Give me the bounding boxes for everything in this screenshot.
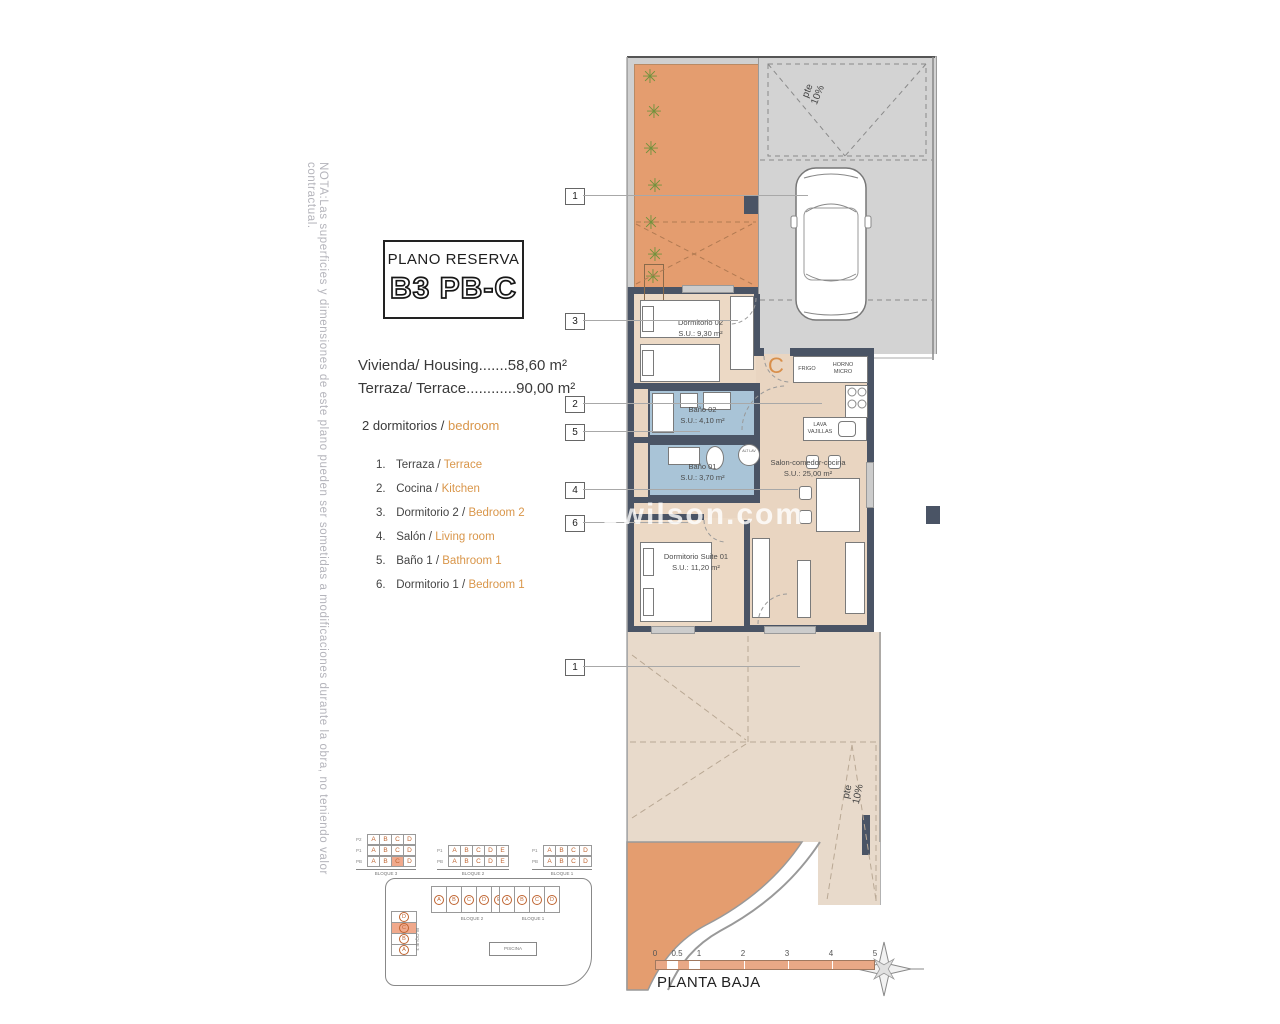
scale-tick: 0: [653, 949, 657, 958]
legend-en: Living room: [435, 531, 494, 543]
leader-line: [583, 431, 700, 432]
callout-terrace-top: 1: [565, 188, 585, 205]
site-bloque1: ABCD: [500, 886, 560, 913]
plan-title: PLANO RESERVA: [385, 251, 522, 268]
scale-bar-strip: [655, 960, 875, 970]
site-bloque1-label: BLOQUE 1: [506, 916, 560, 921]
room-name: Dormitorio Suite 01: [642, 552, 750, 563]
unit-cell: D: [403, 834, 416, 845]
entrance-letter: C: [768, 353, 784, 379]
legend-en: Bedroom 1: [468, 579, 524, 591]
legend-en: Bathroom 1: [442, 555, 501, 567]
label-oven: HORNO MICRO: [829, 362, 857, 375]
legend-num: 6.: [376, 579, 393, 591]
leader-line: [583, 489, 798, 490]
room-area: S.U.: 9,30 m²: [648, 329, 753, 340]
callout-bedroom2: 3: [565, 313, 585, 330]
burners: [848, 388, 866, 408]
label-dishwasher: LAVA VAJILLAS: [806, 422, 834, 435]
table-label: BLOQUE 2: [437, 869, 509, 876]
scale-tick: 3: [785, 949, 789, 958]
room-area: S.U.: 3,70 m²: [655, 473, 750, 484]
legend-en: Terrace: [444, 459, 482, 471]
room-area: S.U.: 4,10 m²: [655, 416, 750, 427]
legend-num: 2.: [376, 483, 393, 495]
site-unit-cell: D: [476, 886, 492, 913]
unit-cell: D: [579, 845, 592, 856]
site-unit-letter: C: [399, 923, 409, 933]
label-bathroom2: Baño 02 S.U.: 4,10 m²: [655, 405, 750, 426]
site-pool: PISCINA: [489, 942, 537, 956]
scale-tick: 1: [697, 949, 701, 958]
label-washer: ALT LAV: [740, 449, 758, 453]
site-bloque3-label: BLOQUE 3: [415, 928, 420, 951]
unit-cell: D: [403, 856, 416, 867]
callout-bedroom1: 6: [565, 515, 585, 532]
room-name: Baño 02: [655, 405, 750, 416]
plan-caption: PLANTA BAJA: [657, 974, 761, 991]
site-unit-letter: B: [399, 934, 409, 944]
legend-es: Terraza /: [396, 459, 441, 471]
unit-table-bloque3: P2ABCDP1ABCDPBABCDBLOQUE 3: [356, 834, 416, 876]
bedrooms-line: 2 dormitorios / bedroom: [362, 418, 499, 433]
unit-table-bloque1: P1ABCDPBABCDBLOQUE 1: [532, 845, 592, 876]
legend-es: Dormitorio 1 /: [396, 579, 465, 591]
scale-tick: 2: [741, 949, 745, 958]
legend-es: Dormitorio 2 /: [396, 507, 465, 519]
disclaimer-note: NOTA:Las superficies y dimensiones de es…: [305, 162, 329, 882]
callout-kitchen: 2: [565, 396, 585, 413]
legend-item: 5. Baño 1 / Bathroom 1: [376, 555, 525, 567]
label-bedroom2: Dormitorio 02 S.U.: 9,30 m²: [648, 318, 753, 339]
site-unit-letter: B: [449, 895, 459, 905]
unit-cell: D: [579, 856, 592, 867]
label-salon: Salon-comedor-cocina S.U.: 25,00 m²: [762, 458, 854, 479]
scale-tick: 5: [873, 949, 877, 958]
site-unit-letter: B: [517, 895, 527, 905]
unit-table-bloque2: P1ABCDEPBABCDEBLOQUE 2: [437, 845, 509, 876]
site-unit-cell: C: [529, 886, 545, 913]
site-unit-cell: B: [514, 886, 530, 913]
title-block: PLANO RESERVA B3 PB-C: [383, 240, 524, 319]
room-area: S.U.: 11,20 m²: [642, 563, 750, 574]
site-bloque2-label: BLOQUE 2: [440, 916, 504, 921]
unit-cell: E: [496, 856, 509, 867]
leader-line: [583, 320, 738, 321]
legend-item: 3. Dormitorio 2 / Bedroom 2: [376, 507, 525, 519]
legend-num: 1.: [376, 459, 393, 471]
site-unit-letter: D: [399, 912, 409, 922]
site-unit-letter: D: [479, 895, 489, 905]
legend-item: 1. Terraza / Terrace: [376, 459, 525, 471]
legend-es: Baño 1 /: [396, 555, 439, 567]
site-unit-letter: A: [502, 895, 512, 905]
unit-cell: D: [403, 845, 416, 856]
legend-item: 6. Dormitorio 1 / Bedroom 1: [376, 579, 525, 591]
site-pool-label: PISCINA: [490, 943, 536, 955]
unit-cell: E: [496, 845, 509, 856]
legend-num: 5.: [376, 555, 393, 567]
site-unit-letter: A: [399, 945, 409, 955]
car-icon: [791, 168, 871, 320]
legend-num: 3.: [376, 507, 393, 519]
legend-es: Salón /: [396, 531, 432, 543]
site-unit-letter: D: [547, 895, 557, 905]
terrace-area: Terraza/ Terrace............90,00 m²: [358, 380, 575, 397]
callout-bathroom: 5: [565, 424, 585, 441]
site-bloque3: DCBA: [391, 912, 417, 956]
scale-tick: 4: [829, 949, 833, 958]
room-name: Salon-comedor-cocina: [762, 458, 854, 469]
label-fridge: FRIGO: [795, 366, 819, 373]
legend-en: Bedroom 2: [468, 507, 524, 519]
site-bloque2: ABCDE: [432, 886, 507, 913]
site-unit-cell: D: [544, 886, 560, 913]
legend-es: Cocina /: [396, 483, 438, 495]
site-unit-letter: A: [434, 895, 444, 905]
label-suite: Dormitorio Suite 01 S.U.: 11,20 m²: [642, 552, 750, 573]
legend-item: 2. Cocina / Kitchen: [376, 483, 525, 495]
legend-num: 4.: [376, 531, 393, 543]
site-unit-cell: A: [391, 944, 417, 956]
scale-tick: 0.5: [671, 949, 682, 958]
room-name: Baño 01: [655, 462, 750, 473]
legend-item: 4. Salón / Living room: [376, 531, 525, 543]
leader-line: [583, 195, 808, 196]
housing-area: Vivienda/ Housing.......58,60 m²: [358, 357, 567, 374]
site-unit-cell: B: [446, 886, 462, 913]
table-label: BLOQUE 3: [356, 869, 416, 876]
site-unit-letter: C: [532, 895, 542, 905]
terrace-dashes: [636, 222, 756, 284]
leader-line: [583, 403, 822, 404]
callout-terrace-bottom: 1: [565, 659, 585, 676]
callout-livingroom: 4: [565, 482, 585, 499]
site-unit-cell: A: [431, 886, 447, 913]
bedrooms-en: bedroom: [448, 418, 499, 433]
watermark: swilson.com: [602, 498, 804, 532]
leader-line: [583, 666, 800, 667]
site-unit-letter: C: [464, 895, 474, 905]
label-bathroom1: Baño 01 S.U.: 3,70 m²: [655, 462, 750, 483]
legend-en: Kitchen: [442, 483, 480, 495]
floor-plan-page: NOTA:Las superficies y dimensiones de es…: [0, 0, 1280, 1024]
bedrooms-es: 2 dormitorios /: [362, 418, 444, 433]
site-unit-cell: A: [499, 886, 515, 913]
site-unit-cell: C: [461, 886, 477, 913]
plan-code: B3 PB-C: [385, 272, 522, 306]
room-area: S.U.: 25,00 m²: [762, 469, 854, 480]
table-label: BLOQUE 1: [532, 869, 592, 876]
legend: 1. Terraza / Terrace 2. Cocina / Kitchen…: [376, 459, 525, 591]
